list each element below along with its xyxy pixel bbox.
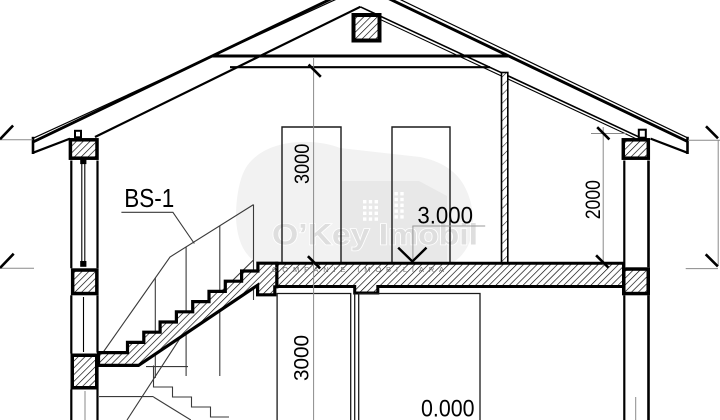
svg-text:2000: 2000 xyxy=(582,180,605,219)
svg-text:BS-1: BS-1 xyxy=(124,185,174,213)
svg-text:3000: 3000 xyxy=(291,335,314,381)
svg-text:0.000: 0.000 xyxy=(421,395,475,420)
svg-text:3.000: 3.000 xyxy=(417,202,473,229)
svg-text:3000: 3000 xyxy=(291,144,314,184)
svg-text:COMPANIE IMOBILIARA: COMPANIE IMOBILIARA xyxy=(272,265,444,274)
